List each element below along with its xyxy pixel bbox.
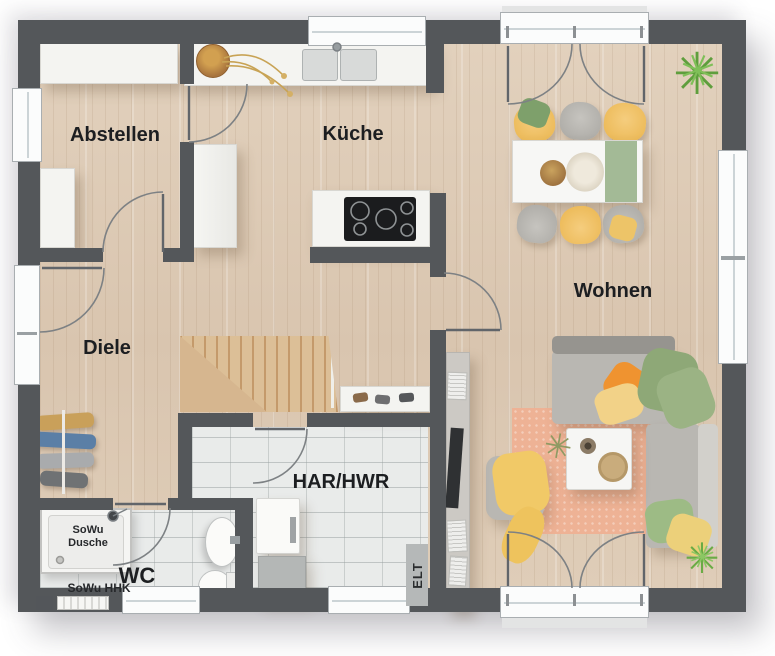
label-diele: Diele xyxy=(47,337,167,360)
kitchen-faucet xyxy=(333,43,341,51)
door-arc-kueche-wohnen xyxy=(444,273,501,330)
floor-plan: ELT ✳ ✳ ✳ ✳ ✳ xyxy=(0,0,775,656)
door-arc-terrace-top-left xyxy=(508,44,572,104)
label-abstellen: Abstellen xyxy=(55,124,175,147)
label-sowu-line1: SoWu xyxy=(48,524,128,537)
door-arc-front-door xyxy=(40,268,104,332)
label-wohnen: Wohnen xyxy=(553,280,673,303)
plan-linework xyxy=(0,0,775,656)
door-arc-abstellen-south xyxy=(103,192,163,252)
door-arc-terrace-bottom-left xyxy=(508,532,572,588)
window-ticks xyxy=(506,26,643,606)
label-sowu-hhk: SoWu HHK xyxy=(44,582,154,595)
door-arc-terrace-top-right xyxy=(580,44,644,104)
label-har-hwr: HAR/HWR xyxy=(261,471,421,494)
door-arc-terrace-bottom-right xyxy=(580,532,644,588)
shower-drain xyxy=(57,557,64,564)
label-kueche: Küche xyxy=(293,123,413,146)
wheat-decor xyxy=(222,55,290,94)
cooktop-burners xyxy=(351,202,413,236)
label-sowu-dusche: SoWu Dusche xyxy=(48,524,128,550)
door-arc-abstellen-kueche xyxy=(189,84,247,142)
wc-tap xyxy=(230,536,240,544)
label-sowu-line2: Dusche xyxy=(48,537,128,550)
